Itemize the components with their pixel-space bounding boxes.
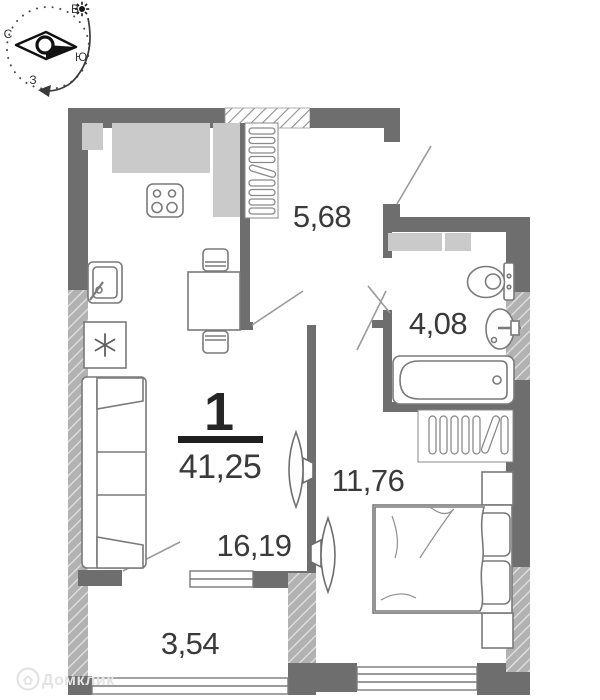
wall-bathroom-stub <box>372 320 383 328</box>
bed-icon <box>373 505 512 613</box>
kitchen-cabinet-small <box>82 123 103 150</box>
stove-icon <box>147 184 183 217</box>
wall-bathroom-left-lower <box>383 310 392 410</box>
wall-bathroom-top <box>383 217 530 232</box>
sun-icon <box>75 2 89 16</box>
kitchen-door-swing <box>252 291 303 325</box>
bedroom <box>373 410 513 648</box>
unit-divider-line <box>178 436 263 443</box>
stove-burner <box>154 190 161 197</box>
wall-living-bottom-left <box>78 570 122 586</box>
compass-letter-west: З <box>29 73 36 87</box>
bathtub-icon <box>393 356 514 404</box>
wall-top-right <box>310 108 400 142</box>
area-label-balcony: 3,54 <box>161 626 220 661</box>
kitchen <box>82 123 240 368</box>
toilet-icon <box>468 263 515 300</box>
stove-burner <box>169 190 176 197</box>
balcony-glazing <box>92 678 288 694</box>
unit-number: 1 <box>204 382 234 442</box>
pillow <box>479 561 510 604</box>
watermark-text: Домклик <box>42 672 115 689</box>
area-label-living: 16,19 <box>216 528 291 563</box>
balcony-block-window <box>190 571 253 587</box>
floorplan-canvas: В С Ю З <box>0 0 600 700</box>
area-label-bathroom: 4,08 <box>409 306 467 341</box>
wall-bedroom-bottom-right <box>477 663 506 695</box>
kitchen-sink-icon <box>88 262 122 303</box>
fridge-icon <box>84 322 126 368</box>
dining-set <box>188 249 240 353</box>
nightstand <box>482 472 513 505</box>
stove-burner <box>152 203 162 213</box>
kitchen-table <box>188 272 240 330</box>
compass-letter-north: С <box>4 27 13 41</box>
wall-balcony-bedroom-hatched <box>288 573 316 663</box>
area-label-hallway: 5,68 <box>293 199 351 234</box>
wall-right-bottom-corner <box>506 672 530 695</box>
watermark-logo-icon <box>18 669 39 690</box>
wall-entry-stub <box>383 204 400 218</box>
bathroom-door-swing <box>368 286 390 313</box>
kitchen-tall-cabinet <box>213 123 240 217</box>
wall-bedroom-bottom-left <box>316 663 357 692</box>
sofa-icon <box>82 377 146 568</box>
kitchen-counter <box>112 123 210 173</box>
total-area: 41,25 <box>179 448 262 486</box>
chair-icon <box>203 331 228 353</box>
bathroom-cabinet <box>388 233 442 251</box>
entrance-door-swing <box>397 146 431 204</box>
area-label-bedroom: 11,76 <box>332 463 405 498</box>
watermark: Домклик <box>18 669 116 690</box>
bedroom-window <box>357 667 477 690</box>
floorplan-svg: В С Ю З <box>0 0 600 700</box>
stove-burner <box>167 203 177 213</box>
compass-rose: В С Ю З <box>4 2 90 97</box>
bathroom-cabinet <box>445 233 471 251</box>
unit-summary: 1 41,25 <box>178 382 263 486</box>
wall-balcony-bedroom-corner <box>288 663 316 695</box>
chair-icon <box>203 249 228 271</box>
wall-living-bedroom <box>307 325 316 573</box>
compass-needle-icon <box>16 32 76 59</box>
nightstand <box>482 613 513 648</box>
wardrobe-icon <box>418 410 513 462</box>
hallway-closet-icon <box>245 123 278 218</box>
